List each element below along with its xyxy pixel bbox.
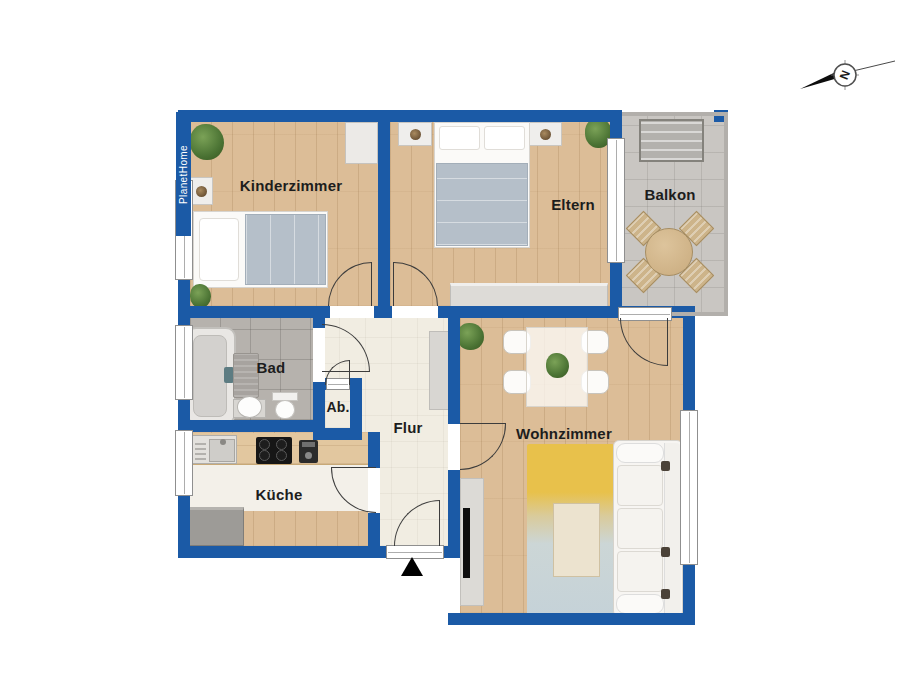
dining-table [526,327,588,407]
floor-plan: Kinderzimmer Eltern Balkon Bad Ab. Flur … [0,0,907,680]
kinderzimmer-wardrobe [345,122,378,164]
room-label-kinderzimmer: Kinderzimmer [240,177,342,194]
drainboard [195,440,206,460]
burner-icon [276,450,287,461]
balkon-bench [639,119,704,162]
sofa-frame-mark [661,589,670,599]
plant-icon [457,323,484,350]
door-leaf [393,262,394,306]
window-bad [175,325,193,400]
kitchen-sink [209,439,235,462]
room-label-bad: Bad [257,359,286,376]
sofa-cushion [617,508,663,549]
coffee-table [553,503,600,577]
balkon-railing-right [724,112,728,316]
room-label-ab: Ab. [326,399,349,415]
potted-plant-icon [540,129,551,140]
sink-bowl [237,396,262,418]
sofa-armrest-top [616,443,664,463]
appliance-detail [302,442,315,447]
window-kueche [175,430,193,496]
faucet-icon [220,439,226,445]
bath-mat [233,353,259,398]
tv-sideboard [460,478,484,606]
sofa-frame-mark [661,547,670,557]
door-leaf [439,500,440,546]
potted-plant-icon [196,186,207,197]
tv-icon [463,508,470,578]
kitchen-appliance [299,440,318,463]
room-label-flur: Flur [393,419,422,436]
appliance-knob [305,452,312,459]
bed-pillow [484,126,525,150]
sofa-frame-mark [661,461,670,471]
compass-icon: N [797,50,897,100]
door-leaf [349,360,350,385]
flur-wardrobe [429,331,449,410]
kinderzimmer-bed [193,211,328,288]
wall-wohnzimmer-bottom [448,613,695,625]
room-label-wohnzimmer: Wohnzimmer [516,425,612,442]
door-leaf [371,262,372,306]
table-plant-icon [546,353,569,378]
eltern-nightstand-right [528,122,562,146]
wall-top [178,110,622,122]
entrance-arrow-icon [401,557,423,576]
wall-kinder-eltern [378,110,390,318]
door-leaf [460,423,506,424]
door-gap-wohnzimmer [448,424,460,470]
plant-icon [190,284,211,308]
balkon-table [645,228,693,276]
door-leaf [331,467,376,468]
bed-blanket [245,214,326,285]
sofa-cushion [617,465,663,506]
sofa-cushion [617,551,663,592]
sofa-armrest-bottom [616,594,664,614]
bed-blanket [436,163,528,246]
brand-logo: PlanetHome [176,112,191,236]
toilet [271,392,300,420]
cooktop [256,437,292,464]
room-label-eltern: Eltern [551,196,595,213]
burner-icon [276,439,287,450]
door-gap-kinderzimmer [330,306,374,318]
kitchen-sink-unit [191,435,237,464]
door-leaf [667,318,668,366]
balkon-railing-bottom [672,312,726,316]
fridge [189,507,244,546]
sofa [613,440,683,617]
bathroom-sink [233,396,266,420]
door-gap-eltern [392,306,438,318]
room-label-balkon: Balkon [644,186,695,203]
window-wohnzimmer [680,410,698,565]
bathtub-basin [193,335,227,417]
balkon-railing-top [622,112,726,116]
plant-icon [190,124,224,160]
potted-plant-icon [410,129,421,140]
wall-bad-bottom [178,420,325,432]
room-label-kueche: Küche [256,486,303,503]
bed-pillow [199,218,239,281]
eltern-bed [434,122,530,248]
burner-icon [259,439,270,450]
bed-pillow [439,126,480,150]
burner-icon [259,450,270,461]
bathtub [186,327,236,424]
toilet-bowl [275,400,295,419]
window-eltern-balkon [607,138,625,263]
eltern-nightstand-left [398,122,432,146]
